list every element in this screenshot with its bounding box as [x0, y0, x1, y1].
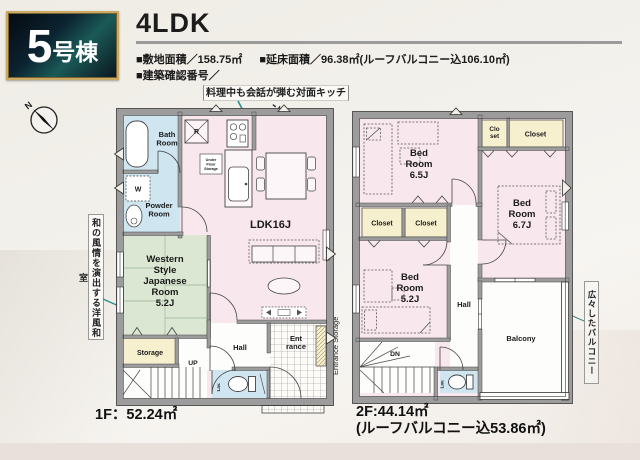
compass-north-label: N	[24, 100, 34, 112]
fridge-label: R	[194, 129, 199, 136]
ldk-room	[120, 112, 330, 402]
dn-label: DN	[390, 351, 400, 358]
japanese-room-note: 和の風情を演出する洋風和室	[88, 214, 104, 340]
porch-step	[262, 406, 324, 414]
inner-wall-edge	[124, 116, 327, 399]
desk65-icon	[398, 122, 438, 164]
spec-line-1: ■敷地面積／158.75㎡ ■延床面積／96.38㎡(ルーフバルコニー込106.…	[136, 51, 510, 67]
balcony-callout-line	[566, 308, 586, 326]
japanese-room-label: WesternStyleJapaneseRoom5.2J	[143, 254, 186, 309]
bed67-label: BedRoom6.7J	[509, 198, 536, 231]
bath-room	[123, 115, 180, 173]
floor2-body	[356, 115, 569, 400]
floor2-area-line1: 2F:44.14㎡	[356, 404, 546, 421]
underfloor-label: UnderFloorStorage	[204, 158, 218, 171]
door-swings2	[423, 179, 506, 370]
windows	[117, 230, 330, 313]
floorplan-flyer: 5 号棟 4LDK ■敷地面積／158.75㎡ ■延床面積／96.38㎡(ルーフ…	[0, 0, 640, 460]
closet-small	[482, 120, 507, 147]
balcony-area	[480, 282, 569, 400]
entrance-label: Entrance	[286, 334, 306, 351]
floor2-rooms	[356, 115, 569, 400]
hall2-label: Hall	[457, 300, 471, 309]
floor2-area-line2: (ルーフバルコニー込53.86㎡)	[356, 421, 546, 438]
ldk-label: LDK16J	[250, 219, 291, 231]
entrance-storage-note: Entrance Storage	[331, 297, 344, 375]
up-corridor	[179, 338, 210, 370]
floor1-plan: BathRoom W PowderRoom R UnderFloorStorag…	[112, 104, 342, 414]
kitchen-callout-line	[230, 99, 254, 121]
bottom-band	[0, 443, 640, 460]
sofa-icon	[249, 240, 319, 263]
coffee-table-icon	[268, 278, 300, 294]
header-divider	[136, 41, 622, 44]
tatami-lines	[123, 235, 207, 335]
closet-mid-right	[405, 208, 447, 237]
door-swings	[158, 151, 301, 398]
floor2-plan: BedRoom6.5J BedRoom6.7J BedRoom5.2J Clos…	[340, 104, 580, 414]
floor1-walls	[123, 112, 327, 398]
entrance-storage-cabinet	[316, 326, 326, 366]
bath-label: BathRoom	[156, 130, 178, 148]
japanese-room-callout-line	[101, 295, 123, 311]
storage-room	[123, 338, 178, 367]
kitchen-caption: 料理中も会話が弾む対面キッチン	[203, 85, 349, 101]
vent-triangles2	[450, 108, 571, 196]
hall-label: Hall	[233, 343, 247, 352]
windows2	[353, 147, 569, 329]
hall-area	[210, 323, 270, 370]
staircase-area	[123, 367, 207, 398]
balcony-railing	[480, 282, 569, 400]
bathtub-icon	[126, 121, 148, 167]
vent-triangles	[115, 105, 336, 344]
floor2-walls	[356, 115, 569, 400]
closet-small-label: Closet	[489, 126, 500, 140]
desk52-icon	[364, 270, 404, 302]
lav2-label: Lav.	[440, 380, 445, 389]
closet-mid-left	[362, 208, 402, 237]
under-floor-storage-box	[200, 154, 222, 174]
floor1-rooms	[120, 112, 330, 413]
sink-basin-icon	[126, 205, 142, 227]
balcony-note: 広々したバルコニー	[584, 281, 599, 384]
building-suffix: 号棟	[52, 41, 98, 64]
site-area: ■敷地面積／158.75㎡	[136, 54, 242, 66]
bed65-label: BedRoom6.5J	[406, 148, 433, 181]
closet-top	[508, 120, 563, 147]
outer-wall-edge	[117, 109, 334, 406]
building-number-badge: 5 号棟	[6, 11, 119, 80]
entrance-area	[270, 323, 327, 398]
bed67-icon	[498, 186, 560, 244]
hall2-area	[450, 205, 478, 393]
plan-type-title: 4LDK	[136, 8, 211, 39]
inner-wall-edge2	[360, 119, 566, 397]
powder-label: PowderRoom	[145, 201, 172, 219]
bed52-label: BedRoom5.2J	[397, 272, 424, 305]
outer-wall-edge2	[353, 112, 573, 404]
toilet2-icon	[449, 375, 474, 389]
lav-label: Lav.	[216, 383, 221, 392]
closet-top-label: Closet	[525, 132, 547, 139]
fold-marks	[132, 328, 177, 336]
floor1-area-label: 1F：52.24㎡	[95, 403, 177, 424]
tv-board-icon	[262, 307, 306, 318]
dining-table-icon	[257, 153, 316, 199]
bed52-icon	[362, 307, 430, 333]
kitchen-counter-sink-icon	[225, 150, 252, 207]
compass-icon: N	[24, 97, 66, 141]
bed65-icon	[364, 124, 392, 194]
floor-area: ■延床面積／96.38㎡(ルーフバルコニー込106.10㎡)	[259, 54, 509, 66]
confirmation-number: ■建築確認番号／	[136, 67, 220, 83]
closet-mid-left-label: Closet	[371, 221, 393, 228]
refrigerator-icon	[185, 120, 208, 143]
building-number: 5	[27, 23, 53, 69]
lavatory2-room	[440, 370, 478, 393]
floor2-area-label: 2F:44.14㎡ (ルーフバルコニー込53.86㎡)	[356, 404, 546, 438]
powder-room	[123, 173, 180, 235]
washer-label: W	[135, 187, 142, 194]
storage-label: Storage	[137, 350, 163, 357]
floor2-labels: BedRoom6.5J BedRoom6.7J BedRoom5.2J Clos…	[371, 126, 547, 388]
lavatory-room	[212, 370, 268, 398]
toilet-icon	[229, 374, 266, 394]
stairs-up-icon	[123, 367, 200, 398]
staircase2-area	[360, 342, 435, 393]
closet-mid-right-label: Closet	[415, 221, 437, 228]
stove-icon	[227, 120, 248, 147]
washing-machine-icon	[126, 176, 150, 201]
floor1-labels: BathRoom W PowderRoom R UnderFloorStorag…	[135, 129, 306, 391]
up-label: UP	[188, 360, 198, 367]
fold-marks2	[368, 151, 556, 248]
japanese-room	[123, 235, 210, 338]
balcony-label: Balcony	[506, 334, 536, 343]
stairs-down-icon	[360, 342, 435, 393]
